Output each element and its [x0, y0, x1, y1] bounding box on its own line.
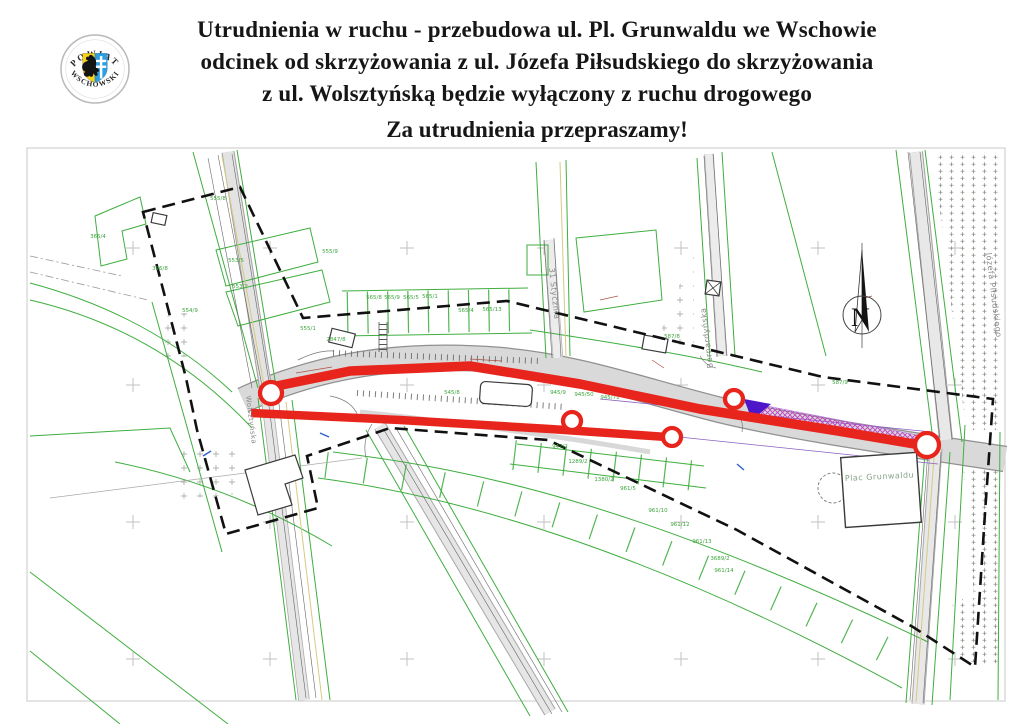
grid-cross [537, 515, 551, 529]
road-closure-marker [915, 433, 939, 457]
grid-cross [400, 378, 414, 392]
street-label: Bernardyńska [699, 307, 715, 369]
parcel-number-label: 565/5 [403, 295, 419, 301]
road-closure-marker [260, 382, 282, 404]
parcel-number-label: 961/12 [670, 522, 689, 528]
grid-cross [126, 515, 140, 529]
building [151, 213, 167, 226]
parcel-number-label: 565/13 [482, 307, 502, 313]
parcel-number-label: 555/9 [322, 249, 338, 255]
parcel-number-label: 945/9 [550, 390, 566, 396]
site-plan-svg: 555/8365/4396/8553/5553/2555/9554/9555/1… [0, 140, 1024, 724]
parcel-number-label: 961/13 [692, 539, 712, 545]
parcel-number-label: 553/2 [232, 284, 248, 290]
announcement-titles: Utrudnienia w ruchu - przebudowa ul. Pl.… [60, 14, 1014, 146]
parcel-number-label: 587/9 [832, 380, 848, 386]
parcel-labels-layer: 555/8365/4396/8553/5553/2555/9554/9555/1… [90, 196, 848, 574]
north-letter: N [851, 303, 870, 332]
announcement-page: POWIAT WSCHOWSKI [0, 0, 1024, 724]
grid-cross [126, 652, 140, 666]
parcel-number-label: 961/10 [648, 508, 668, 514]
parcel-number-label: 565/9 [384, 295, 400, 301]
grid-cross [537, 652, 551, 666]
parcel-number-label: 961/5 [620, 486, 636, 492]
title-line-1: Utrudnienia w ruchu - przebudowa ul. Pl.… [60, 14, 1014, 46]
grid-cross [400, 652, 414, 666]
parcel-number-label: 947/2 [552, 444, 568, 450]
parcel-number-label: 555/1 [300, 326, 316, 332]
building [479, 381, 532, 407]
parcel-number-label: 565/8 [366, 295, 382, 301]
title-line-3: z ul. Wolsztyńską będzie wyłączony z ruc… [60, 78, 1014, 110]
title-line-2: odcinek od skrzyżowania z ul. Józefa Pił… [60, 46, 1014, 78]
road-closure-marker [563, 412, 581, 430]
road-works-map: 555/8365/4396/8553/5553/2555/9554/9555/1… [0, 140, 1024, 724]
parcel-number-label: 553/5 [228, 258, 244, 264]
parcel-number-label: 565/1 [422, 294, 438, 300]
grid-cross [126, 241, 140, 255]
parcel-number-label: 1380/2 [594, 477, 613, 483]
grid-cross [674, 241, 688, 255]
parcel-number-label: 2847/8 [326, 337, 346, 343]
parcel-number-label: 555/8 [210, 196, 226, 202]
north-arrow: N [843, 243, 881, 348]
grid-cross [400, 241, 414, 255]
parcel-number-label: 587/8 [664, 334, 680, 340]
grid-cross [400, 515, 414, 529]
grid-cross [811, 241, 825, 255]
parcel-number-label: 545/8 [444, 390, 460, 396]
grid-cross [811, 378, 825, 392]
parcel-number-label: 565/4 [458, 308, 474, 314]
grid-cross [126, 378, 140, 392]
grid-cross [263, 652, 277, 666]
grid-cross [811, 515, 825, 529]
building-plac-grunwaldu [841, 452, 922, 527]
parcel-number-label: 554/9 [182, 308, 198, 314]
grid-cross [674, 652, 688, 666]
utility-box [705, 280, 721, 296]
header: POWIAT WSCHOWSKI [0, 0, 1024, 145]
parcel-number-label: 961/14 [714, 568, 734, 574]
parcel-number-label: 945/50 [574, 392, 594, 398]
parcel-number-label: 1289/2 [568, 459, 587, 465]
road-closure-marker [725, 390, 743, 408]
parcel-number-label: 396/8 [152, 266, 168, 272]
parcel-number-label: 365/4 [90, 234, 106, 240]
grid-cross [811, 652, 825, 666]
parking-ticks-south [357, 393, 566, 407]
ladder-symbol [379, 322, 387, 352]
parcel-number-label: 3689/2 [710, 556, 729, 562]
road-closure-marker [663, 428, 681, 446]
